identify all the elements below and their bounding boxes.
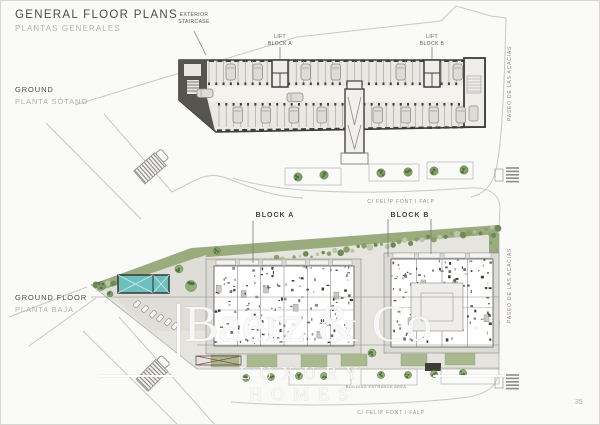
- street-label-felip-upper: C/ FELIP FONT I FALP: [341, 199, 461, 205]
- tree-icon: [377, 169, 385, 177]
- car-icon: [453, 64, 463, 80]
- car-icon: [289, 107, 299, 123]
- tree-icon: [294, 173, 302, 181]
- street-staircase-icon: [136, 354, 173, 391]
- car-icon: [233, 107, 243, 123]
- car-icon: [287, 93, 303, 102]
- car-icon: [226, 64, 236, 80]
- page-title: GENERAL FLOOR PLANS: [15, 9, 178, 21]
- tree-icon: [404, 371, 411, 378]
- parking-garage: [179, 58, 485, 164]
- tree-icon: [459, 369, 466, 376]
- tree-icon: [320, 372, 327, 379]
- tree-icon: [320, 171, 328, 179]
- tree-icon: [186, 281, 197, 292]
- street-label-paseo-upper: PASEO DE LAS ACACIAS: [507, 51, 513, 121]
- car-icon: [429, 107, 439, 123]
- upper-plan-name-es: PLANTA SÓTANO: [15, 97, 88, 106]
- car-icon: [301, 64, 311, 80]
- tree-icon: [267, 373, 274, 380]
- tree-icon: [430, 167, 438, 175]
- crosswalk-icon: [495, 168, 519, 182]
- ramp-icon: [341, 81, 368, 164]
- tree-icon: [430, 370, 437, 377]
- building-entrance-label: BUILDING ENTRANCE AREA: [331, 384, 421, 389]
- car-icon: [197, 89, 213, 98]
- car-icon: [331, 64, 341, 80]
- block-a-label: BLOCK A: [245, 212, 305, 219]
- tree-icon: [242, 374, 249, 381]
- upper-plan-name-en: GROUND: [15, 85, 54, 94]
- lower-plan-name-en: GROUND FLOOR: [15, 293, 87, 302]
- car-icon: [373, 107, 383, 123]
- page-subtitle: PLANTAS GENERALES: [15, 24, 121, 33]
- tree-icon: [404, 168, 412, 176]
- tree-icon: [107, 291, 113, 297]
- car-icon: [253, 64, 263, 80]
- street-label-felip-lower: C/ FELIP FONT I FALP: [331, 410, 451, 416]
- floor-plan-page: GENERAL FLOOR PLANS PLANTAS GENERALES EX…: [0, 0, 600, 425]
- car-icon: [456, 107, 466, 123]
- tree-icon: [175, 265, 183, 273]
- tree-icon: [295, 372, 302, 379]
- lower-plan-name-es: PLANTA BAJA: [15, 305, 74, 314]
- page-number: 35: [575, 399, 583, 406]
- car-icon: [317, 107, 327, 123]
- exterior-staircase-label: EXTERIOR STAIRCASE: [161, 12, 227, 26]
- street-staircase-icon: [134, 148, 172, 184]
- block-b-label: BLOCK B: [380, 212, 440, 219]
- tree-icon: [214, 248, 221, 255]
- tree-icon: [97, 282, 106, 291]
- block-b-building: [384, 253, 499, 353]
- tree-icon: [368, 349, 376, 357]
- tree-icon: [377, 371, 384, 378]
- street-label-paseo-lower: PASEO DE LAS ACACIAS: [507, 253, 513, 323]
- crosswalk-icon: [495, 375, 519, 389]
- lift-block-a-shaft: [272, 60, 288, 87]
- lower-street-trees: [242, 369, 466, 381]
- car-icon: [261, 107, 271, 123]
- block-a-building: [206, 259, 361, 354]
- car-icon: [401, 107, 411, 123]
- right-stair-core: [464, 58, 485, 127]
- lift-block-b-shaft: [424, 60, 440, 87]
- tree-icon: [460, 166, 468, 174]
- lift-block-b-label: LIFT BLOCK B: [410, 34, 454, 48]
- car-icon: [396, 64, 406, 80]
- lift-block-a-label: LIFT BLOCK A: [258, 34, 302, 48]
- residential-site: [91, 225, 501, 371]
